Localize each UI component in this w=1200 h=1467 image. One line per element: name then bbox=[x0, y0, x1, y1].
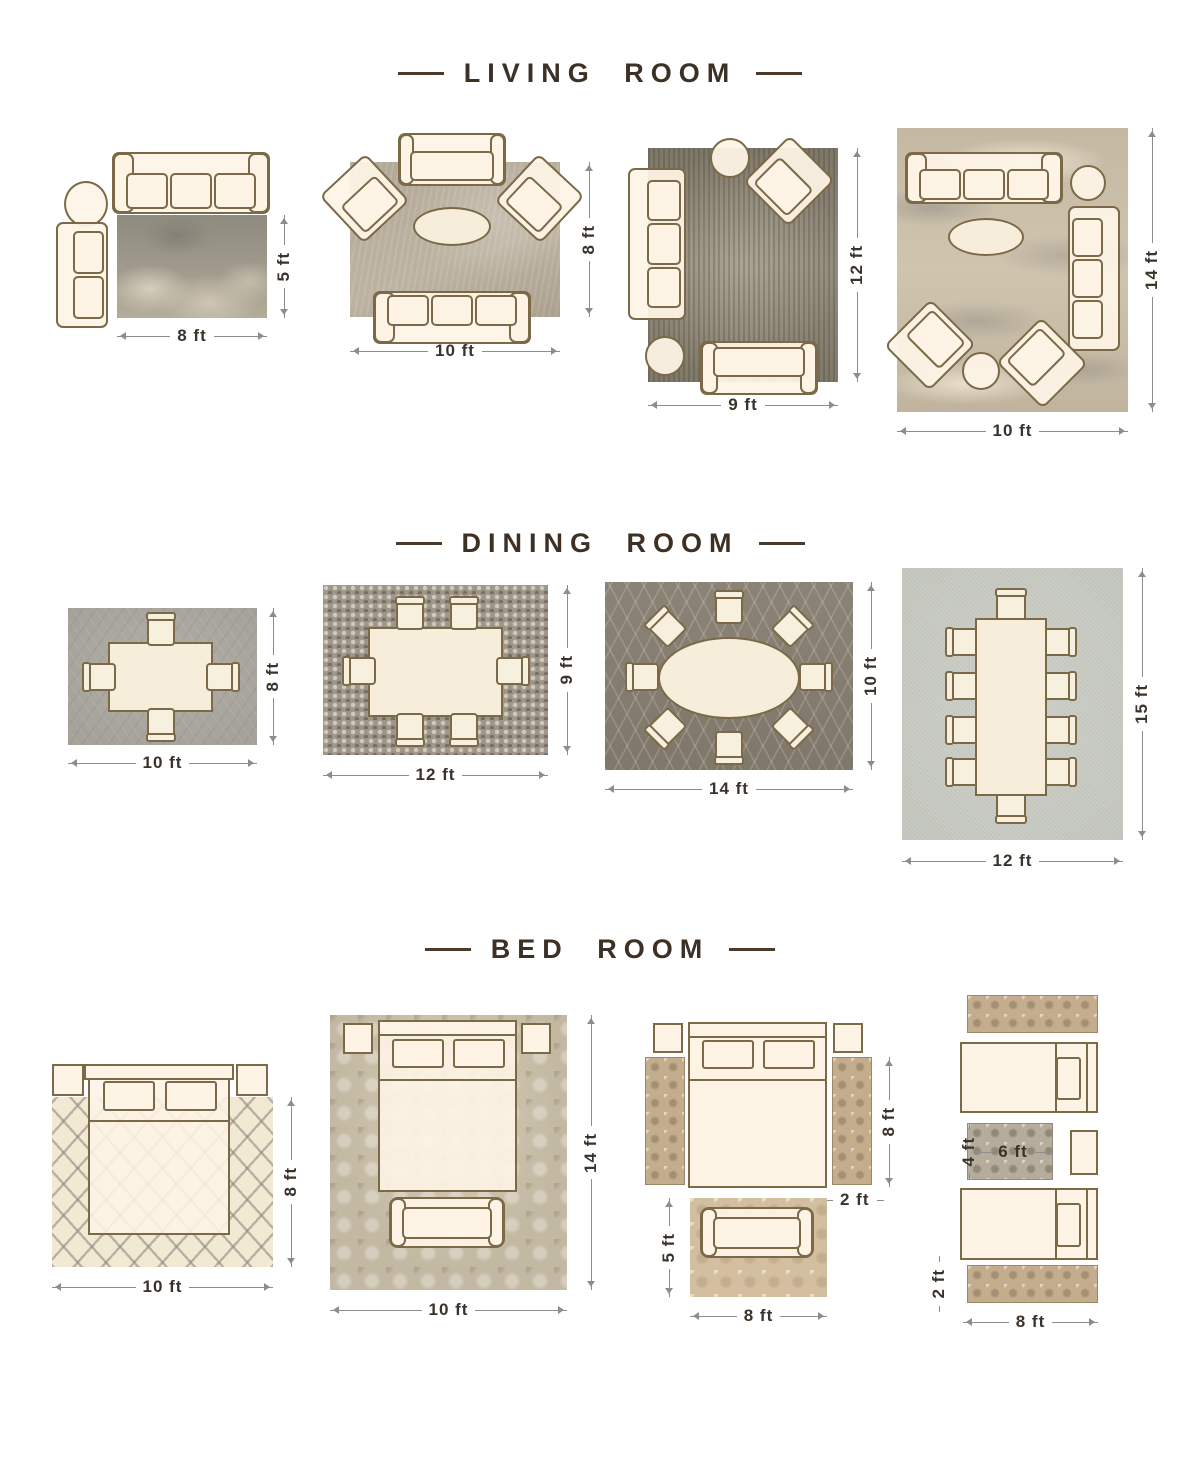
loveseat-cushion bbox=[73, 276, 103, 319]
headboard bbox=[1086, 1189, 1088, 1259]
dimension-label: 8 ft bbox=[579, 225, 599, 255]
round-ottoman bbox=[962, 352, 1000, 390]
dimension-line bbox=[877, 1200, 884, 1201]
bed-room-title: BED ROOM bbox=[0, 934, 1200, 965]
dimension-line bbox=[1035, 1152, 1052, 1153]
nightstand bbox=[521, 1023, 551, 1054]
dining-chair bbox=[346, 657, 376, 685]
dimension-line bbox=[969, 1123, 970, 1130]
sofa bbox=[905, 152, 1063, 204]
dimension-label: 2 ft bbox=[929, 1269, 949, 1299]
dining-chair bbox=[629, 663, 659, 691]
sofa-cushion bbox=[1072, 259, 1102, 298]
bench-seat bbox=[713, 1217, 801, 1250]
dimension-width: 8 ft bbox=[117, 327, 267, 345]
dimension-line bbox=[669, 1269, 670, 1297]
dimension-height: 5 ft bbox=[275, 215, 293, 318]
dining-room-title: DINING ROOM bbox=[0, 528, 1200, 559]
sofa-cushion bbox=[170, 173, 212, 210]
sofa-cushion bbox=[963, 169, 1005, 199]
dimension-label: 5 ft bbox=[274, 252, 294, 282]
dimension-line bbox=[897, 431, 986, 432]
dimension-line bbox=[284, 215, 285, 245]
dimension-line bbox=[462, 775, 548, 776]
round-side-table bbox=[64, 181, 108, 227]
dimension-label: 2 ft bbox=[840, 1190, 870, 1210]
sofa-cushions bbox=[1072, 218, 1102, 339]
dimension-width: 12 ft bbox=[902, 852, 1123, 870]
pillow bbox=[453, 1039, 505, 1068]
living-rug-8x5 bbox=[117, 215, 267, 318]
dimension-line bbox=[889, 1144, 890, 1187]
dimension-label: 12 ft bbox=[416, 765, 456, 785]
dimension-label: 12 ft bbox=[993, 851, 1033, 871]
headboard bbox=[378, 1020, 517, 1036]
dimension-height: 14 ft bbox=[582, 1015, 600, 1290]
dimension-line bbox=[291, 1097, 292, 1160]
dimension-height: 8 ft bbox=[282, 1097, 300, 1267]
dimension-label: 6 ft bbox=[998, 1142, 1028, 1162]
dimension-line bbox=[963, 1322, 1009, 1323]
bed bbox=[88, 1065, 230, 1235]
runner-rug bbox=[967, 1265, 1098, 1303]
dining-chair bbox=[715, 594, 743, 624]
dining-chair bbox=[147, 708, 175, 738]
sofa-cushion bbox=[126, 173, 168, 210]
dimension-line bbox=[871, 703, 872, 770]
dining-chair bbox=[450, 600, 478, 630]
pillow bbox=[1056, 1203, 1081, 1247]
sofa-cushion bbox=[647, 180, 681, 221]
blanket-fold bbox=[379, 1079, 516, 1081]
nightstand bbox=[1070, 1130, 1098, 1175]
nightstand bbox=[833, 1023, 863, 1053]
dimension-line bbox=[871, 582, 872, 649]
sofa-cushions bbox=[387, 295, 516, 326]
dining-room-title-text: DINING ROOM bbox=[462, 528, 739, 559]
dimension-line bbox=[591, 1179, 592, 1290]
dimension-line bbox=[323, 775, 409, 776]
dimension-width: 10 ft bbox=[52, 1278, 273, 1296]
title-dash-right bbox=[729, 948, 775, 951]
dimension-width: 10 ft bbox=[68, 754, 257, 772]
loveseat-cushion bbox=[713, 347, 804, 378]
nightstand bbox=[236, 1064, 268, 1096]
title-dash-left bbox=[396, 542, 442, 545]
dimension-line bbox=[291, 1204, 292, 1267]
pillow bbox=[392, 1039, 444, 1068]
dining-chair bbox=[715, 731, 743, 761]
dimension-line bbox=[902, 861, 986, 862]
dimension-line bbox=[669, 1198, 670, 1226]
bed bbox=[688, 1023, 827, 1188]
dining-chair bbox=[147, 616, 175, 646]
loveseat-cushion bbox=[73, 231, 103, 274]
dimension-width: 10 ft bbox=[350, 342, 560, 360]
dimension-label: 8 ft bbox=[744, 1306, 774, 1326]
dimension-accent-rug-width: 6 ft bbox=[974, 1143, 1052, 1161]
dimension-line bbox=[591, 1015, 592, 1126]
dimension-line bbox=[284, 288, 285, 318]
dimension-height: 14 ft bbox=[1143, 128, 1161, 412]
sofa bbox=[628, 168, 686, 320]
nightstand bbox=[343, 1023, 373, 1054]
dimension-width: 12 ft bbox=[323, 766, 548, 784]
loveseat bbox=[56, 222, 108, 328]
dimension-line bbox=[939, 1306, 940, 1312]
dimension-label: 10 ft bbox=[861, 656, 881, 696]
headboard bbox=[1086, 1043, 1088, 1112]
pillow bbox=[763, 1040, 815, 1069]
blanket-fold bbox=[689, 1079, 826, 1081]
dimension-line bbox=[273, 698, 274, 745]
dining-chair bbox=[396, 600, 424, 630]
sofa-cushion bbox=[647, 223, 681, 264]
dimension-label: 14 ft bbox=[581, 1133, 601, 1173]
pillow bbox=[165, 1081, 217, 1111]
dimension-width: 10 ft bbox=[330, 1301, 567, 1319]
pillow bbox=[1056, 1057, 1081, 1100]
dimension-line bbox=[189, 763, 257, 764]
dimension-label: 10 ft bbox=[435, 341, 475, 361]
loveseat-cushions bbox=[73, 231, 103, 319]
dining-table bbox=[368, 627, 503, 717]
dimension-line bbox=[857, 148, 858, 238]
sofa-cushion bbox=[214, 173, 256, 210]
dimension-line bbox=[826, 1200, 833, 1201]
bench bbox=[389, 1197, 505, 1248]
sofa-cushion bbox=[647, 267, 681, 308]
round-side-table bbox=[710, 138, 750, 178]
dimension-label: 8 ft bbox=[263, 662, 283, 692]
round-side-table bbox=[1070, 165, 1106, 201]
bench-seat bbox=[402, 1207, 492, 1240]
dimension-width: 10 ft bbox=[897, 422, 1128, 440]
dining-table bbox=[108, 642, 213, 712]
headboard bbox=[688, 1022, 827, 1038]
dimension-line bbox=[482, 351, 560, 352]
dimension-height: 12 ft bbox=[848, 148, 866, 382]
dimension-line bbox=[1152, 128, 1153, 243]
nightstand bbox=[653, 1023, 683, 1053]
dimension-label: 10 ft bbox=[429, 1300, 469, 1320]
dimension-line bbox=[1052, 1322, 1098, 1323]
dimension-foot-rug-width: 8 ft bbox=[690, 1307, 827, 1325]
sofa-cushion bbox=[1007, 169, 1049, 199]
dimension-line bbox=[589, 162, 590, 218]
bed bbox=[378, 1021, 517, 1192]
living-room-title-text: LIVING ROOM bbox=[464, 58, 737, 89]
dimension-line bbox=[330, 1310, 422, 1311]
dimension-line bbox=[350, 351, 428, 352]
dimension-line bbox=[68, 763, 136, 764]
sofa-cushion bbox=[1072, 218, 1102, 257]
dining-chair bbox=[1043, 758, 1073, 786]
headboard bbox=[84, 1064, 234, 1080]
dimension-line bbox=[117, 336, 170, 337]
oval-coffee-table bbox=[948, 218, 1024, 256]
dimension-label: 9 ft bbox=[728, 395, 758, 415]
dimension-label: 15 ft bbox=[1132, 684, 1152, 724]
dimension-line bbox=[567, 585, 568, 648]
dimension-label: 12 ft bbox=[847, 245, 867, 285]
pillow bbox=[103, 1081, 155, 1111]
title-dash-right bbox=[756, 72, 802, 75]
dimension-line bbox=[214, 336, 267, 337]
dining-chair bbox=[1043, 628, 1073, 656]
dimension-label: 8 ft bbox=[177, 326, 207, 346]
title-dash-right bbox=[759, 542, 805, 545]
dining-chair bbox=[206, 663, 236, 691]
dimension-runner-width: 2 ft bbox=[826, 1191, 884, 1209]
dimension-label: 5 ft bbox=[659, 1233, 679, 1263]
dimension-line bbox=[1142, 731, 1143, 840]
title-dash-left bbox=[425, 948, 471, 951]
sofa bbox=[1068, 206, 1120, 351]
dimension-label: 10 ft bbox=[143, 753, 183, 773]
dimension-width: 9 ft bbox=[648, 396, 838, 414]
sofa-cushion bbox=[475, 295, 517, 326]
dimension-line bbox=[857, 292, 858, 382]
sofa-cushion bbox=[1072, 300, 1102, 339]
dimension-height: 15 ft bbox=[1133, 568, 1151, 840]
dining-chair bbox=[799, 663, 829, 691]
blanket-fold bbox=[89, 1120, 229, 1122]
dimension-line bbox=[690, 1316, 737, 1317]
pillow bbox=[702, 1040, 754, 1069]
sofa-cushion bbox=[919, 169, 961, 199]
dimension-line bbox=[765, 405, 838, 406]
dimension-height: 10 ft bbox=[862, 582, 880, 770]
sofa-cushions bbox=[919, 169, 1048, 199]
dimension-width: 8 ft bbox=[963, 1313, 1098, 1331]
dining-chair bbox=[1043, 716, 1073, 744]
dimension-line bbox=[1039, 431, 1128, 432]
dimension-label: 9 ft bbox=[557, 655, 577, 685]
dimension-line bbox=[974, 1152, 991, 1153]
dimension-line bbox=[273, 608, 274, 655]
dimension-label: 14 ft bbox=[1142, 250, 1162, 290]
dimension-line bbox=[567, 692, 568, 755]
dimension-line bbox=[939, 1256, 940, 1262]
loveseat-cushion bbox=[410, 151, 493, 181]
dimension-line bbox=[1039, 861, 1123, 862]
dining-chair bbox=[1043, 672, 1073, 700]
dimension-height: 8 ft bbox=[580, 162, 598, 317]
dimension-line bbox=[189, 1287, 273, 1288]
dimension-line bbox=[52, 1287, 136, 1288]
dining-chair bbox=[86, 663, 116, 691]
dimension-line bbox=[605, 789, 702, 790]
dimension-runner-height: 2 ft bbox=[930, 1258, 948, 1310]
sofa bbox=[373, 291, 531, 344]
dimension-line bbox=[889, 1057, 890, 1100]
dining-table bbox=[975, 618, 1047, 796]
bench bbox=[700, 1207, 814, 1258]
dining-chair bbox=[450, 713, 478, 743]
dining-chair bbox=[496, 657, 526, 685]
loveseat bbox=[398, 133, 506, 186]
sofa-cushions bbox=[126, 173, 255, 210]
bedside-runner-rug bbox=[832, 1057, 872, 1185]
oval-coffee-table bbox=[413, 207, 491, 246]
dimension-label: 14 ft bbox=[709, 779, 749, 799]
dimension-line bbox=[1152, 297, 1153, 412]
twin-bed bbox=[960, 1042, 1098, 1113]
dimension-label: 8 ft bbox=[879, 1107, 899, 1137]
dimension-height: 9 ft bbox=[558, 585, 576, 755]
loveseat bbox=[700, 341, 818, 395]
dimension-label: 8 ft bbox=[281, 1167, 301, 1197]
nightstand bbox=[52, 1064, 84, 1096]
dining-chair bbox=[396, 713, 424, 743]
dimension-line bbox=[969, 1173, 970, 1180]
dimension-line bbox=[1142, 568, 1143, 677]
dimension-label: 8 ft bbox=[1016, 1312, 1046, 1332]
living-room-title: LIVING ROOM bbox=[0, 58, 1200, 89]
dimension-foot-rug-height: 5 ft bbox=[660, 1198, 678, 1297]
bedside-runner-rug bbox=[645, 1057, 685, 1185]
title-dash-left bbox=[398, 72, 444, 75]
dimension-height: 8 ft bbox=[264, 608, 282, 745]
sofa-cushion bbox=[387, 295, 429, 326]
oval-dining-table bbox=[658, 637, 800, 719]
rug-size-guide: LIVING ROOM DINING ROOM BED ROOM 5 ft 8 … bbox=[0, 0, 1200, 1467]
sofa-cushions bbox=[647, 180, 681, 307]
dimension-line bbox=[648, 405, 721, 406]
runner-rug bbox=[967, 995, 1098, 1033]
dimension-bed-height: 8 ft bbox=[880, 1057, 898, 1187]
dimension-label: 10 ft bbox=[143, 1277, 183, 1297]
dimension-line bbox=[756, 789, 853, 790]
dimension-line bbox=[780, 1316, 827, 1317]
sofa-cushion bbox=[431, 295, 473, 326]
sofa bbox=[112, 152, 270, 214]
dimension-label: 10 ft bbox=[993, 421, 1033, 441]
twin-bed bbox=[960, 1188, 1098, 1260]
dimension-line bbox=[589, 261, 590, 317]
bed-room-title-text: BED ROOM bbox=[491, 934, 710, 965]
dimension-line bbox=[475, 1310, 567, 1311]
dimension-width: 14 ft bbox=[605, 780, 853, 798]
round-ottoman bbox=[645, 336, 685, 376]
